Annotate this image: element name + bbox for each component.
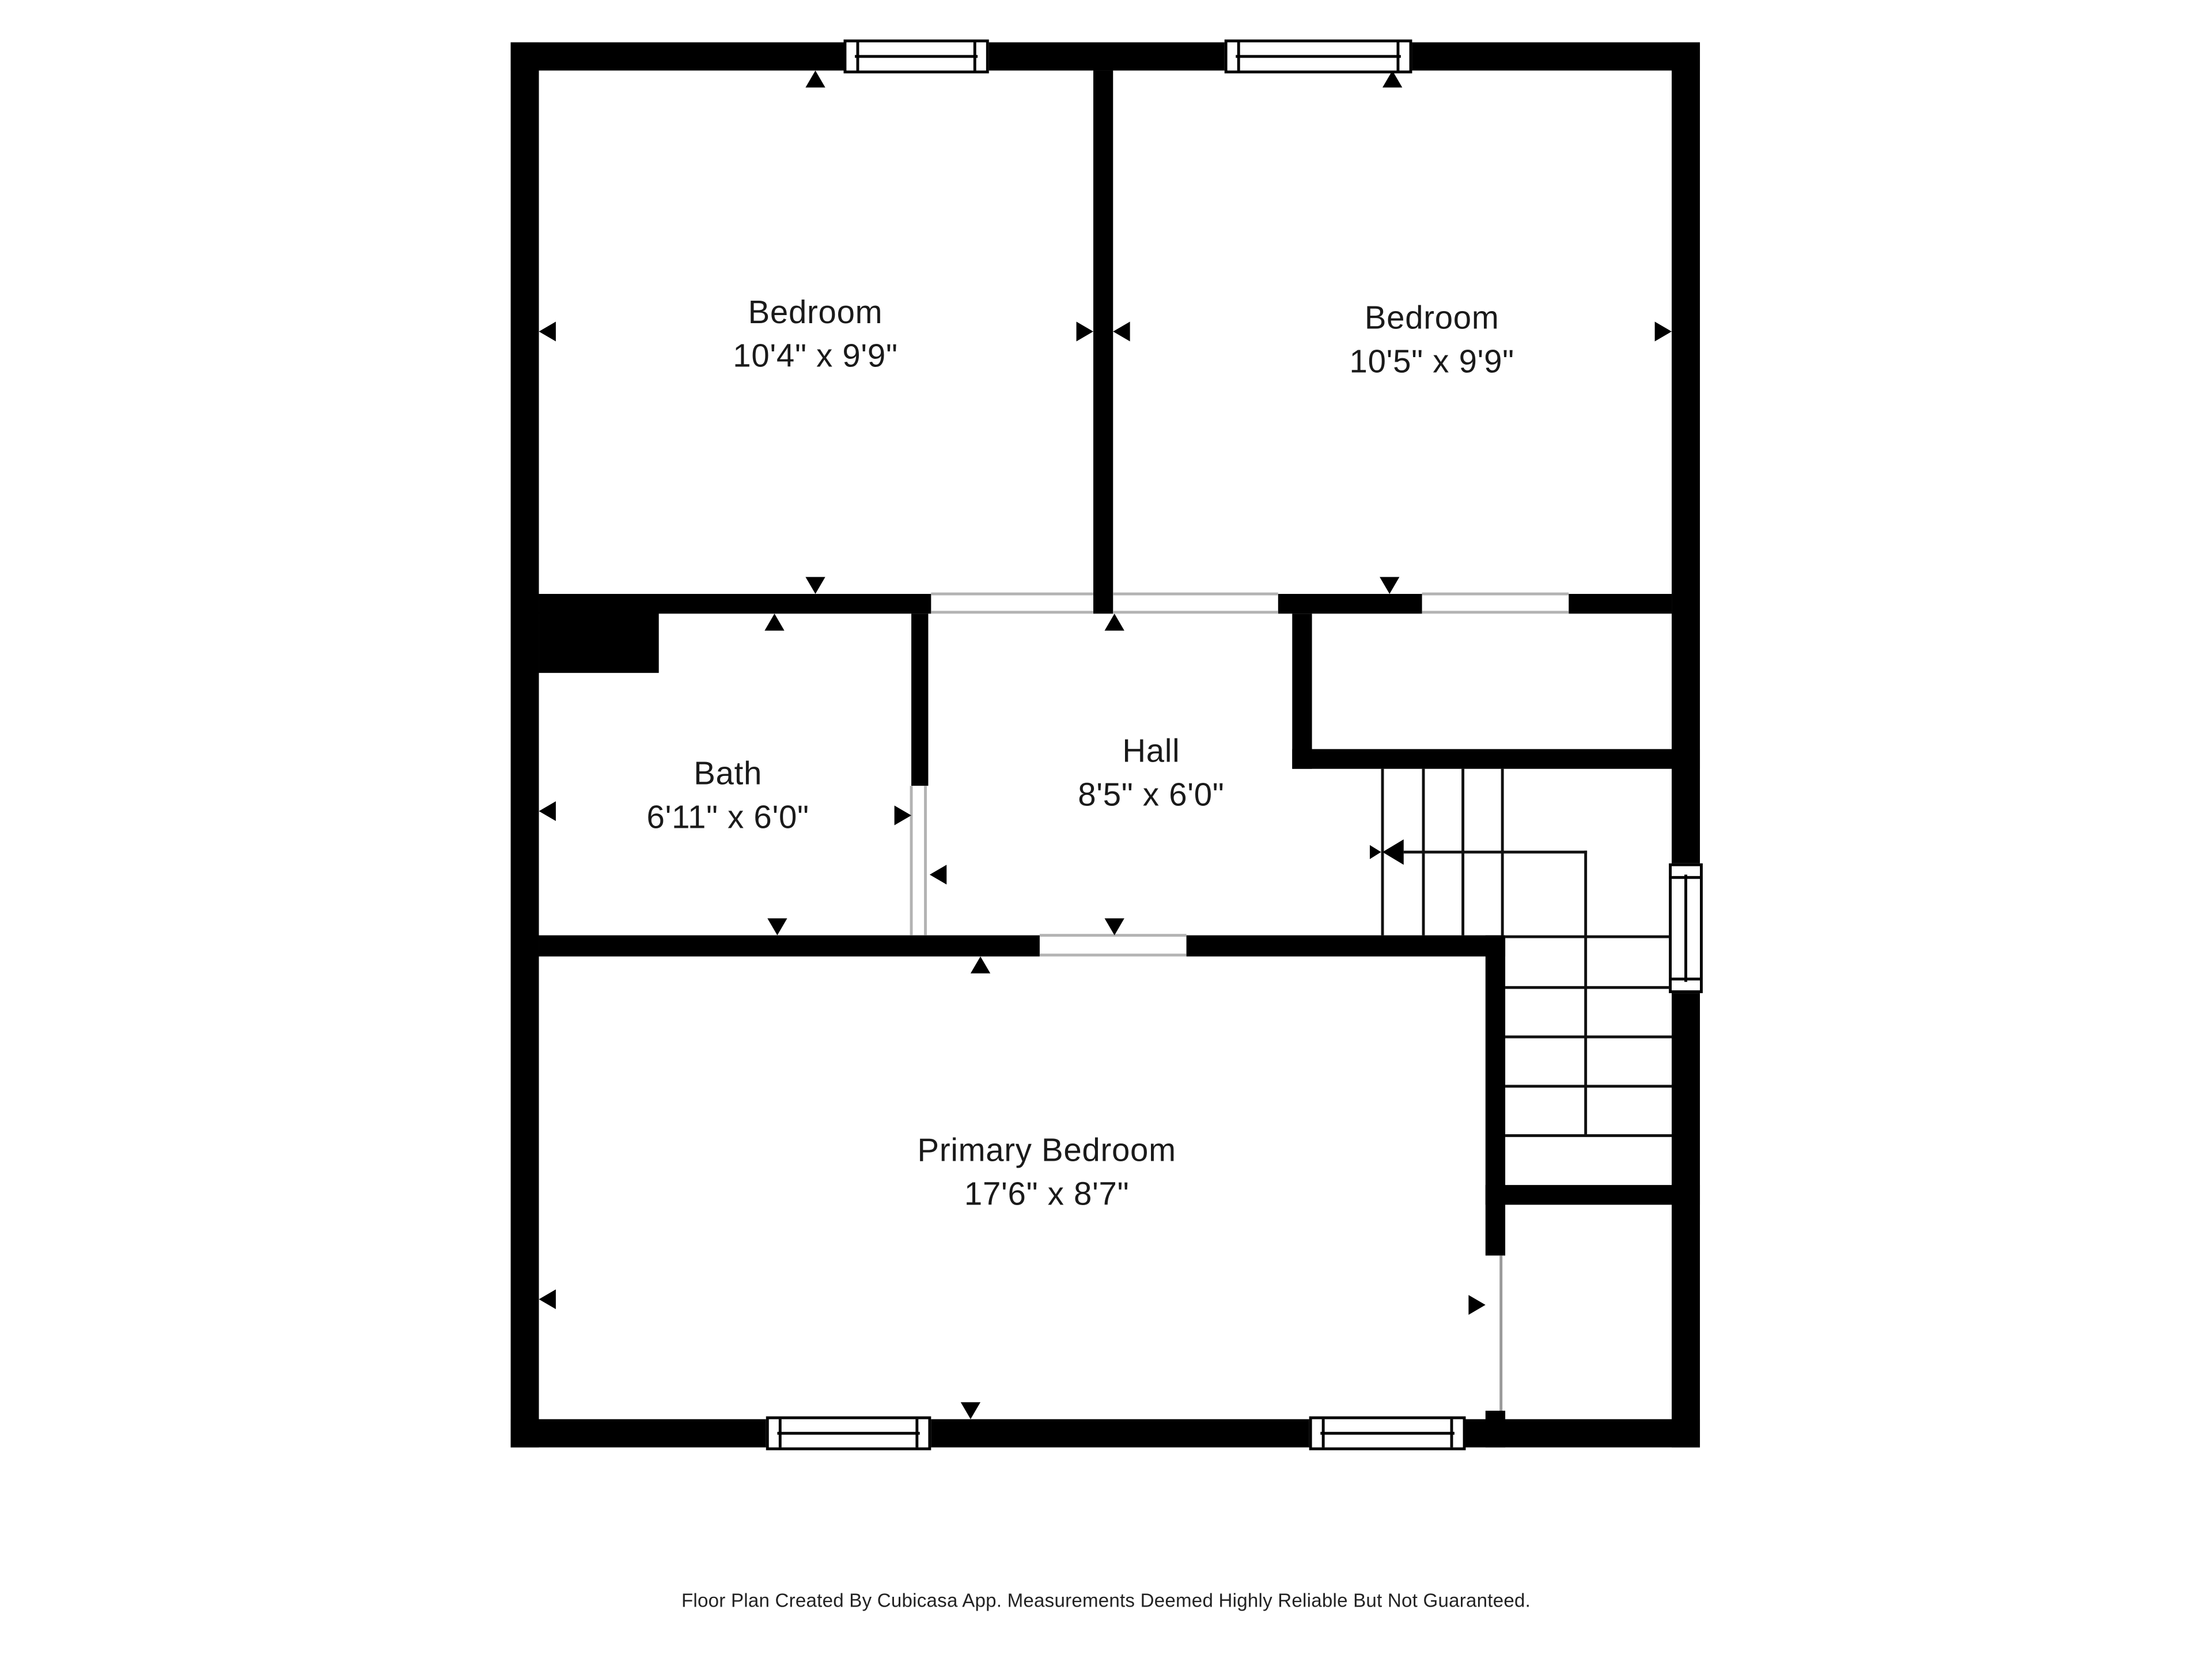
measure-arrow-up-icon — [1382, 70, 1402, 87]
door-opening-bedroom-2 — [1113, 593, 1278, 596]
room-name: Primary Bedroom — [918, 1128, 1176, 1172]
room-dimensions: 17'6" x 8'7" — [918, 1172, 1176, 1216]
measure-arrow-up-icon — [764, 613, 784, 630]
door-opening-closet-inner — [1422, 611, 1569, 613]
hall-measure-arrow-right-icon — [1370, 845, 1381, 859]
wall-hall-bottom-right — [1187, 935, 1505, 957]
window-right — [1669, 863, 1703, 993]
wall-bedroom-divider — [1093, 70, 1113, 613]
measure-arrow-down-icon — [805, 577, 825, 594]
wall-primary-right — [1486, 935, 1505, 1256]
measure-arrow-down-icon — [961, 1402, 980, 1419]
measure-arrow-right-icon — [1655, 321, 1672, 341]
room-name: Hall — [1078, 729, 1224, 773]
window-frame-line — [1684, 874, 1687, 982]
room-dimensions: 10'5" x 9'9" — [1350, 340, 1514, 384]
measure-arrow-right-icon — [895, 805, 911, 825]
wall-primary-right-stub — [1486, 1411, 1505, 1448]
measure-arrow-left-icon — [539, 801, 556, 821]
door-opening-closet — [1422, 593, 1569, 596]
measure-arrow-up-icon — [805, 70, 825, 87]
door-opening-primary-inner — [1040, 954, 1187, 957]
wall-exterior-bottom — [511, 1419, 1700, 1448]
measure-arrow-left-icon — [539, 1289, 556, 1309]
wall-exterior-top — [511, 42, 1700, 70]
measure-arrow-up-icon — [971, 956, 990, 973]
window-top-right — [1225, 40, 1412, 74]
room-name: Bedroom — [733, 290, 897, 334]
room-label-bedroom-2: Bedroom 10'5" x 9'9" — [1350, 296, 1514, 384]
measure-arrow-right-icon — [1077, 321, 1093, 341]
measure-arrow-down-icon — [1380, 577, 1399, 594]
stair-tread-line-lower — [1505, 935, 1672, 938]
measure-arrow-right-icon — [1468, 1295, 1485, 1315]
measure-arrow-up-icon — [1105, 613, 1124, 630]
window-frame-line — [777, 1432, 919, 1435]
wall-exterior-left — [511, 42, 539, 1447]
wall-exterior-right — [1672, 42, 1700, 1447]
room-label-bedroom-1: Bedroom 10'4" x 9'9" — [733, 290, 897, 378]
window-frame-line — [855, 55, 978, 58]
window-bottom-right — [1309, 1416, 1466, 1450]
wall-closet-left — [1292, 613, 1312, 768]
room-dimensions: 10'4" x 9'9" — [733, 334, 897, 378]
wall-stair-bottom — [1486, 1185, 1700, 1205]
stair-tread-line-lower — [1505, 1085, 1672, 1088]
door-opening-bedroom-1-inner — [931, 611, 1093, 613]
window-frame-line — [1236, 55, 1401, 58]
window-bottom-left — [766, 1416, 931, 1450]
measure-arrow-left-icon — [539, 321, 556, 341]
wall-closet-bottom — [1292, 749, 1700, 768]
stair-walk-line-horizontal — [1404, 851, 1587, 854]
room-label-bath: Bath 6'11" x 6'0" — [647, 752, 809, 839]
stair-tread-line-lower — [1505, 1036, 1672, 1039]
door-opening-bath-inner — [924, 786, 927, 935]
wall-hall-bottom-left — [539, 935, 1040, 957]
room-name: Bedroom — [1350, 296, 1514, 340]
measure-arrow-down-icon — [767, 918, 787, 935]
room-dimensions: 6'11" x 6'0" — [647, 796, 809, 839]
stair-direction-arrow-icon — [1382, 839, 1404, 865]
wall-mid-left — [539, 594, 931, 613]
stair-tread-line-lower — [1505, 1134, 1672, 1137]
floor-plan: Bedroom 10'4" x 9'9" Bedroom 10'5" x 9'9… — [0, 0, 2212, 1659]
wall-bath-right — [911, 613, 928, 786]
door-opening-bedroom-1 — [931, 593, 1093, 596]
room-label-hall: Hall 8'5" x 6'0" — [1078, 729, 1224, 817]
measure-arrow-left-icon — [1113, 321, 1130, 341]
door-leaf-rear-room — [1499, 1256, 1502, 1411]
bath-corner-block — [539, 612, 659, 673]
door-opening-bedroom-2-inner — [1113, 611, 1278, 613]
stair-tread-line-lower — [1505, 986, 1672, 989]
footer-disclaimer: Floor Plan Created By Cubicasa App. Meas… — [681, 1590, 1531, 1611]
measure-arrow-left-icon — [930, 865, 946, 884]
wall-mid-center — [1278, 594, 1422, 613]
wall-mid-right — [1569, 594, 1672, 613]
window-frame-line — [1320, 1432, 1455, 1435]
floor-plan-page: Bedroom 10'4" x 9'9" Bedroom 10'5" x 9'9… — [0, 0, 2212, 1659]
room-label-primary-bedroom: Primary Bedroom 17'6" x 8'7" — [918, 1128, 1176, 1216]
measure-arrow-down-icon — [1105, 918, 1124, 935]
room-dimensions: 8'5" x 6'0" — [1078, 773, 1224, 817]
room-name: Bath — [647, 752, 809, 796]
window-top-left — [843, 40, 988, 74]
stair-walk-line-vertical — [1584, 851, 1587, 1134]
